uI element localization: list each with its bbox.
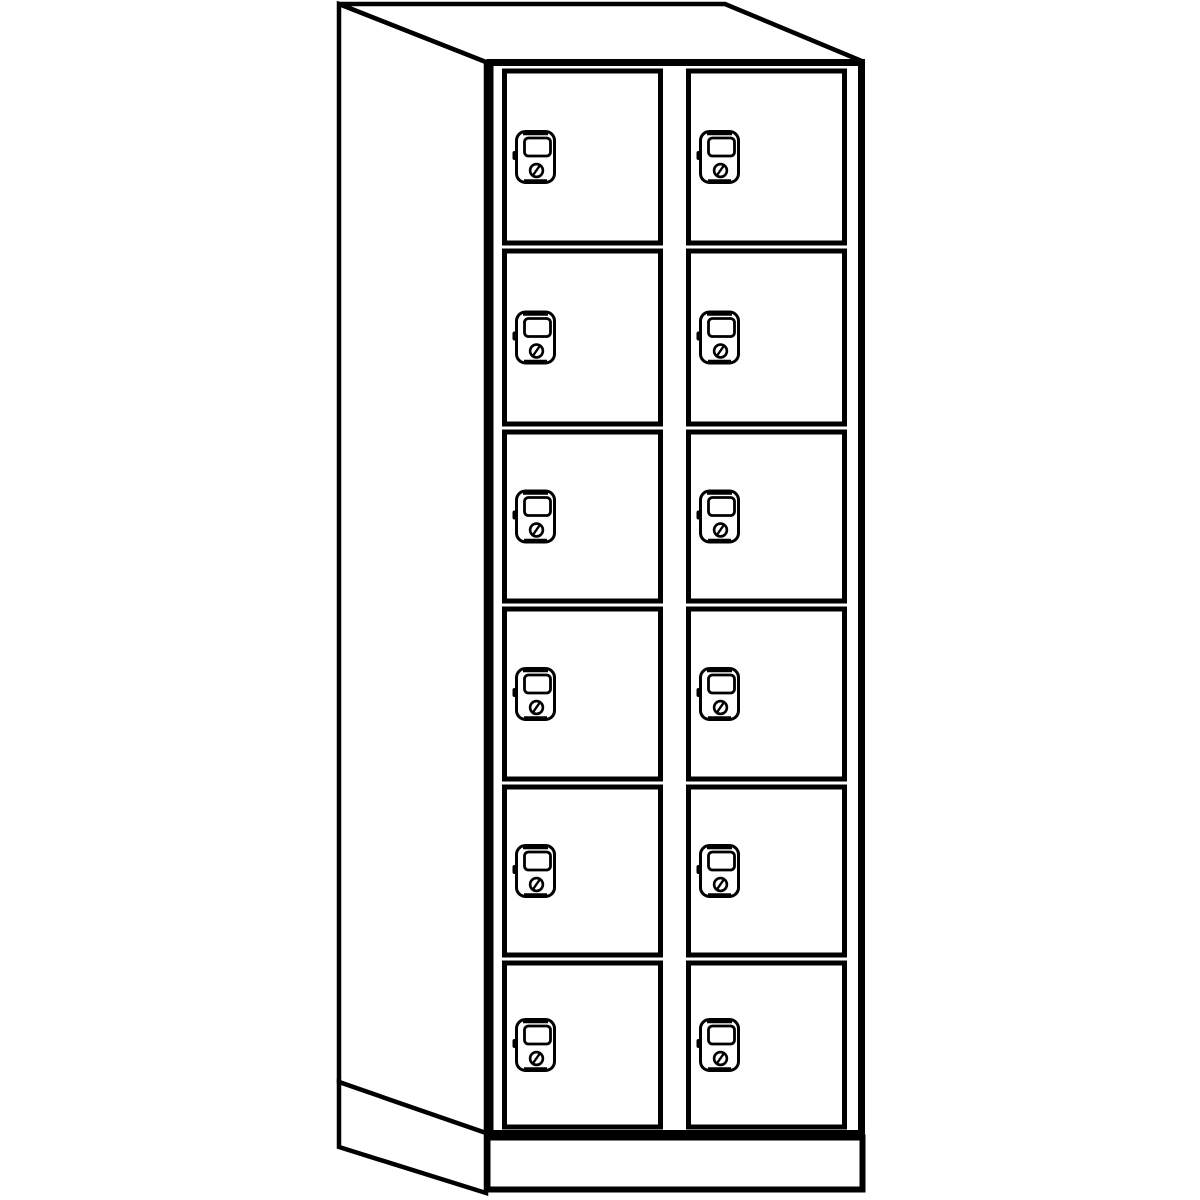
door-c2-r1 <box>689 71 845 243</box>
door-c2-r4 <box>689 609 845 779</box>
lock-icon <box>513 669 555 720</box>
door-c1-r5 <box>505 787 661 955</box>
lock-icon <box>697 312 739 363</box>
lock-label-window <box>709 319 735 337</box>
door-c2-r2 <box>689 251 845 424</box>
lock-label-window <box>525 852 551 870</box>
door-c2-r3 <box>689 432 845 601</box>
door-c2-r6 <box>689 963 845 1127</box>
lock-label-window <box>709 852 735 870</box>
lock-icon <box>513 132 555 183</box>
lock-icon <box>513 846 555 897</box>
door-c1-r4 <box>505 609 661 779</box>
lock-icon <box>513 312 555 363</box>
plinth-front-face <box>488 1138 863 1190</box>
lock-icon <box>697 491 739 542</box>
lock-label-window <box>709 1026 735 1044</box>
lock-icon <box>697 669 739 720</box>
lock-label-window <box>709 138 735 156</box>
cabinet-side-panel <box>339 4 486 1135</box>
lock-icon <box>697 1020 739 1071</box>
locker-cabinet-drawing <box>0 0 1200 1200</box>
door-c1-r6 <box>505 963 661 1127</box>
lock-label-window <box>525 498 551 516</box>
lock-label-window <box>709 498 735 516</box>
lock-label-window <box>525 1026 551 1044</box>
door-c2-r5 <box>689 787 845 955</box>
door-c1-r3 <box>505 432 661 601</box>
lock-icon <box>513 1020 555 1071</box>
lock-icon <box>697 132 739 183</box>
illustration-canvas <box>0 0 1200 1200</box>
door-c1-r2 <box>505 251 661 424</box>
lock-label-window <box>525 138 551 156</box>
lock-icon <box>697 846 739 897</box>
lock-icon <box>513 491 555 542</box>
lock-label-window <box>709 675 735 693</box>
lock-label-window <box>525 319 551 337</box>
door-c1-r1 <box>505 71 661 243</box>
lock-label-window <box>525 675 551 693</box>
